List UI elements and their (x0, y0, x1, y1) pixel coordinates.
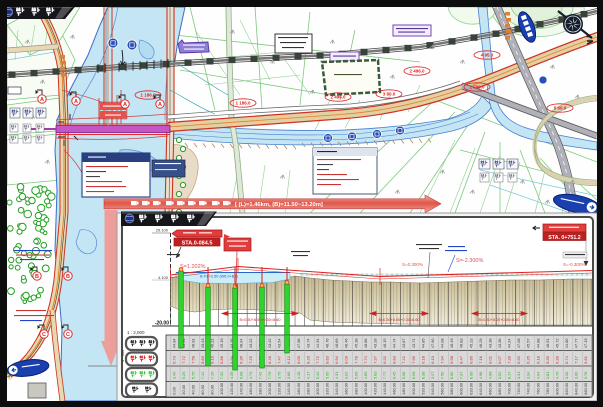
svg-text:720.00: 720.00 (516, 382, 521, 395)
svg-text:3.52: 3.52 (497, 372, 502, 380)
svg-text:3.34: 3.34 (526, 371, 531, 379)
svg-text:8.09: 8.09 (344, 356, 349, 364)
svg-text:48.15: 48.15 (382, 338, 387, 348)
svg-text:B=0.30+8.00+0.30=8.60: B=0.30+8.00+0.30=8.60 (479, 318, 520, 322)
svg-text:760.00: 760.00 (535, 382, 540, 395)
svg-text:4.100: 4.100 (158, 275, 169, 280)
svg-text:7.37: 7.37 (373, 356, 378, 364)
svg-text:500.00: 500.00 (411, 382, 416, 395)
svg-text:44.85: 44.85 (420, 338, 425, 348)
svg-text:4.79: 4.79 (248, 372, 253, 380)
svg-text:200.00: 200.00 (267, 382, 272, 395)
svg-text:5.75: 5.75 (190, 372, 195, 380)
svg-text:3.26: 3.26 (564, 372, 569, 380)
svg-text:3.27: 3.27 (430, 372, 435, 380)
svg-text:7.94: 7.94 (440, 355, 445, 363)
svg-text:1 186.0: 1 186.0 (235, 101, 251, 106)
svg-text:47.08: 47.08 (516, 338, 521, 348)
svg-text:44.08: 44.08 (440, 338, 445, 348)
svg-text:4.96: 4.96 (478, 372, 483, 380)
svg-text:3.76: 3.76 (583, 372, 588, 380)
svg-text:7.50: 7.50 (440, 371, 445, 379)
svg-text:7.10: 7.10 (210, 371, 215, 379)
svg-text:320.00: 320.00 (325, 382, 330, 395)
svg-text:48.86: 48.86 (363, 338, 368, 348)
svg-text:580.00: 580.00 (449, 382, 454, 395)
svg-text:43.28: 43.28 (373, 338, 378, 348)
svg-text:A: A (123, 102, 127, 108)
svg-text:7.42: 7.42 (200, 372, 205, 380)
svg-text:S=0.300%: S=0.300% (402, 262, 423, 267)
svg-text:120.00: 120.00 (229, 382, 234, 395)
svg-text:600.00: 600.00 (459, 382, 464, 395)
svg-text:4 95.0: 4 95.0 (481, 53, 494, 58)
svg-text:B: B (35, 274, 39, 280)
svg-text:6.74: 6.74 (564, 355, 569, 363)
svg-text:A: A (158, 102, 162, 108)
svg-text:740.00: 740.00 (526, 382, 531, 395)
svg-text:840.00: 840.00 (574, 382, 579, 395)
svg-text:46.04: 46.04 (238, 338, 243, 349)
svg-text:280.00: 280.00 (305, 382, 310, 395)
svg-text:420.00: 420.00 (373, 382, 378, 395)
svg-text:46.29: 46.29 (478, 338, 483, 348)
svg-text:7.79: 7.79 (267, 372, 272, 380)
svg-text:45.23: 45.23 (468, 338, 473, 348)
svg-text:6.07: 6.07 (497, 356, 502, 364)
svg-text:540.00: 540.00 (430, 382, 435, 395)
svg-text:8.63: 8.63 (200, 356, 205, 364)
svg-text:3.00: 3.00 (574, 371, 579, 379)
svg-text:520.00: 520.00 (420, 382, 425, 395)
svg-text:8.30: 8.30 (545, 355, 550, 363)
svg-text:180.00: 180.00 (258, 382, 263, 395)
svg-text:340.00: 340.00 (334, 382, 339, 395)
svg-text:B: B (66, 274, 70, 280)
svg-text:46.49: 46.49 (449, 338, 454, 348)
svg-text:560.00: 560.00 (440, 382, 445, 395)
svg-text:7.78: 7.78 (353, 356, 358, 364)
svg-text:6.35: 6.35 (526, 356, 531, 364)
svg-text:800.00: 800.00 (555, 382, 560, 395)
svg-text:47.19: 47.19 (583, 338, 588, 348)
svg-text:43.54: 43.54 (277, 338, 282, 349)
svg-text:S=-2.300%: S=-2.300% (456, 258, 483, 264)
svg-text:46.51: 46.51 (545, 338, 550, 348)
svg-text:44.80: 44.80 (564, 338, 569, 349)
svg-text:4.31: 4.31 (334, 372, 339, 380)
svg-text:4.99: 4.99 (487, 372, 492, 380)
svg-text:1 586.0: 1 586.0 (469, 85, 485, 90)
svg-text:46.83: 46.83 (459, 338, 464, 348)
svg-text:40.00: 40.00 (190, 384, 195, 395)
svg-text:3.81: 3.81 (545, 372, 550, 380)
svg-text:6.45: 6.45 (392, 372, 397, 380)
svg-text:46.91: 46.91 (190, 338, 195, 348)
svg-text:5.42: 5.42 (315, 372, 320, 380)
svg-text:400.00: 400.00 (363, 382, 368, 395)
svg-text:780.00: 780.00 (545, 382, 550, 395)
svg-text:240.00: 240.00 (286, 382, 291, 395)
svg-text:43.71: 43.71 (411, 338, 416, 348)
svg-text:60.00: 60.00 (200, 384, 205, 395)
svg-text:5.25: 5.25 (181, 372, 186, 380)
svg-text:3.40: 3.40 (171, 371, 176, 379)
svg-text:43.42: 43.42 (267, 338, 272, 348)
svg-text:7.58: 7.58 (190, 356, 195, 364)
svg-text:6.50: 6.50 (516, 355, 521, 363)
svg-text:5.83: 5.83 (373, 372, 378, 380)
svg-text:7.39: 7.39 (507, 356, 512, 364)
svg-text:44.88: 44.88 (535, 338, 540, 348)
svg-text:7.47: 7.47 (277, 356, 282, 364)
svg-text:140.00: 140.00 (238, 382, 243, 395)
svg-text:620.00: 620.00 (468, 382, 473, 395)
svg-text:6.18: 6.18 (420, 356, 425, 364)
svg-text:B.P.L=2.50 (W6.0+B2): B.P.L=2.50 (W6.0+B2) (200, 275, 238, 279)
svg-text:C: C (66, 332, 70, 338)
svg-text:220.00: 220.00 (277, 382, 282, 395)
svg-text:80.00: 80.00 (210, 384, 215, 395)
svg-text:7.77: 7.77 (382, 372, 387, 380)
svg-text:43.38: 43.38 (487, 338, 492, 348)
svg-text:44.74: 44.74 (392, 338, 397, 349)
svg-text:STA. 0+751.2: STA. 0+751.2 (548, 235, 580, 241)
svg-text:160.00: 160.00 (248, 382, 253, 395)
svg-text:3 80.0: 3 80.0 (383, 92, 396, 97)
svg-text:700.00: 700.00 (507, 382, 512, 395)
svg-text:8.29: 8.29 (305, 356, 310, 364)
svg-text:7.42: 7.42 (258, 372, 263, 380)
svg-text:[ (L)=1.46km, (B)=11.50~13.20: [ (L)=1.46km, (B)=11.50~13.20m] (235, 202, 323, 208)
svg-text:5.58: 5.58 (401, 372, 406, 380)
svg-text:8.10: 8.10 (430, 355, 435, 363)
svg-text:860.00: 860.00 (583, 382, 588, 395)
svg-text:C: C (42, 332, 46, 338)
svg-text:45.38: 45.38 (353, 338, 358, 348)
svg-text:440.00: 440.00 (382, 382, 387, 395)
svg-text:4.16: 4.16 (296, 372, 301, 380)
svg-text:7.17: 7.17 (574, 356, 579, 364)
svg-text:4.17: 4.17 (305, 372, 310, 380)
svg-text:6.46: 6.46 (267, 356, 272, 364)
svg-text:B=0.30+8.00+0.30=8.60: B=0.30+8.00+0.30=8.60 (379, 318, 420, 322)
svg-text:6.73: 6.73 (171, 356, 176, 364)
svg-text:260.00: 260.00 (296, 382, 301, 395)
svg-text:8.00: 8.00 (296, 355, 301, 363)
svg-text:680.00: 680.00 (497, 382, 502, 395)
svg-text:3.75: 3.75 (277, 372, 282, 380)
svg-text:480.00: 480.00 (401, 382, 406, 395)
svg-text:8.63: 8.63 (325, 356, 330, 364)
svg-text:43.74: 43.74 (305, 338, 310, 349)
svg-text:7.42: 7.42 (401, 356, 406, 364)
svg-text:360.00: 360.00 (344, 382, 349, 395)
svg-text:7.74: 7.74 (363, 355, 368, 363)
svg-text:5.08: 5.08 (238, 372, 243, 380)
svg-text:46.76: 46.76 (325, 338, 330, 348)
svg-text:6.85: 6.85 (468, 356, 473, 364)
svg-text:5.95: 5.95 (325, 372, 330, 380)
svg-text:2 496.0: 2 496.0 (330, 95, 346, 100)
svg-text:43.87: 43.87 (401, 338, 406, 348)
svg-text:8.01: 8.01 (487, 356, 492, 364)
svg-text:7.37: 7.37 (459, 372, 464, 380)
svg-text:47.77: 47.77 (574, 338, 579, 348)
svg-text:0.00: 0.00 (171, 386, 176, 394)
svg-text:43.36: 43.36 (497, 338, 502, 348)
svg-text:7.16: 7.16 (478, 356, 483, 364)
svg-text:7.72: 7.72 (181, 356, 186, 364)
svg-text:660.00: 660.00 (487, 382, 492, 395)
svg-text:640.00: 640.00 (478, 382, 483, 395)
svg-text:4.70: 4.70 (555, 371, 560, 379)
svg-text:6.12: 6.12 (286, 356, 291, 364)
svg-text:46.46: 46.46 (344, 338, 349, 348)
svg-text:48.69: 48.69 (334, 338, 339, 348)
svg-text:47.90: 47.90 (430, 338, 435, 349)
svg-text:6.39: 6.39 (555, 356, 560, 364)
svg-text:300.00: 300.00 (315, 382, 320, 395)
svg-text:43.43: 43.43 (200, 338, 205, 348)
svg-text:S=1.202%: S=1.202% (180, 264, 206, 270)
svg-text:380.00: 380.00 (353, 382, 358, 395)
svg-text:45.57: 45.57 (526, 338, 531, 348)
svg-text:S=-0.300%: S=-0.300% (563, 262, 585, 267)
svg-text:44.34: 44.34 (315, 338, 320, 349)
svg-text:6.18: 6.18 (535, 356, 540, 364)
svg-text:6.09: 6.09 (411, 372, 416, 380)
svg-text:44.94: 44.94 (171, 338, 176, 349)
svg-text:1 : 400: 1 : 400 (120, 349, 125, 362)
svg-text:100.00: 100.00 (219, 382, 224, 395)
svg-text:4.39: 4.39 (229, 372, 234, 380)
svg-text:3.02: 3.02 (344, 372, 349, 380)
svg-text:820.00: 820.00 (564, 382, 569, 395)
svg-text:7.32: 7.32 (219, 372, 224, 380)
svg-text:4.04: 4.04 (535, 371, 540, 379)
svg-text:8.52: 8.52 (382, 356, 387, 364)
svg-text:5 60.0: 5 60.0 (554, 106, 567, 111)
svg-text:7.99: 7.99 (411, 356, 416, 364)
svg-text:45.19: 45.19 (219, 338, 224, 348)
svg-text:6.35: 6.35 (238, 356, 243, 364)
svg-text:7.72: 7.72 (315, 356, 320, 364)
svg-text:20.00: 20.00 (181, 384, 186, 395)
svg-text:6.86: 6.86 (219, 356, 224, 364)
svg-text:A: A (40, 97, 44, 103)
svg-text:43.22: 43.22 (248, 338, 253, 348)
svg-text:4.85: 4.85 (363, 372, 368, 380)
svg-text:3.88: 3.88 (286, 372, 291, 380)
svg-text:STA.0-084.5: STA.0-084.5 (182, 240, 213, 246)
svg-text:47.96: 47.96 (296, 338, 301, 348)
svg-text:44.24: 44.24 (507, 338, 512, 349)
svg-text:8.98: 8.98 (449, 356, 454, 364)
svg-text:8.61: 8.61 (583, 356, 588, 364)
svg-text:45.72: 45.72 (555, 338, 560, 348)
svg-text:29.100: 29.100 (156, 228, 169, 233)
svg-text:8.47: 8.47 (459, 356, 464, 364)
svg-text:6.38: 6.38 (420, 372, 425, 380)
svg-text:A: A (74, 99, 78, 105)
svg-text:6.94: 6.94 (334, 355, 339, 363)
svg-text:5.09: 5.09 (353, 372, 358, 380)
svg-text:7.25: 7.25 (248, 356, 253, 364)
svg-text:6.99: 6.99 (468, 372, 473, 380)
svg-text:6.90: 6.90 (449, 371, 454, 379)
svg-text:6.17: 6.17 (507, 372, 512, 380)
svg-text:B=0.30+8.00+0.30=8.60: B=0.30+8.00+0.30=8.60 (240, 318, 281, 322)
svg-text:3.31: 3.31 (516, 372, 521, 380)
svg-text:2 496.0: 2 496.0 (409, 69, 425, 74)
svg-text:1 : 2,000: 1 : 2,000 (127, 330, 145, 335)
svg-text:460.00: 460.00 (392, 382, 397, 395)
svg-text:8.83: 8.83 (392, 356, 397, 364)
